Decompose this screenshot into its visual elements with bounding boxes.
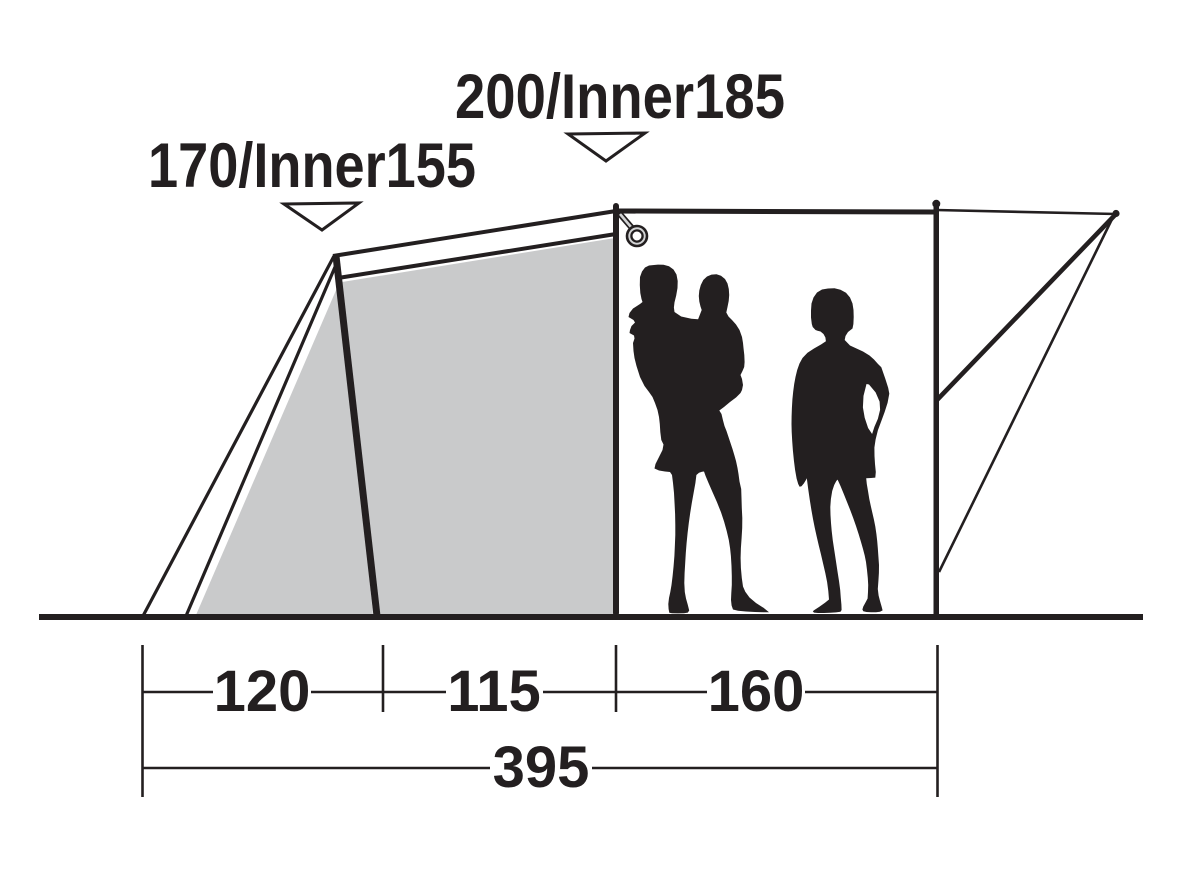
svg-text:115: 115 — [447, 659, 541, 724]
svg-text:120: 120 — [214, 659, 311, 724]
svg-text:170/Inner155: 170/Inner155 — [148, 131, 476, 201]
svg-text:395: 395 — [493, 735, 590, 800]
svg-text:200/Inner185: 200/Inner185 — [455, 62, 785, 132]
svg-text:160: 160 — [708, 659, 805, 724]
